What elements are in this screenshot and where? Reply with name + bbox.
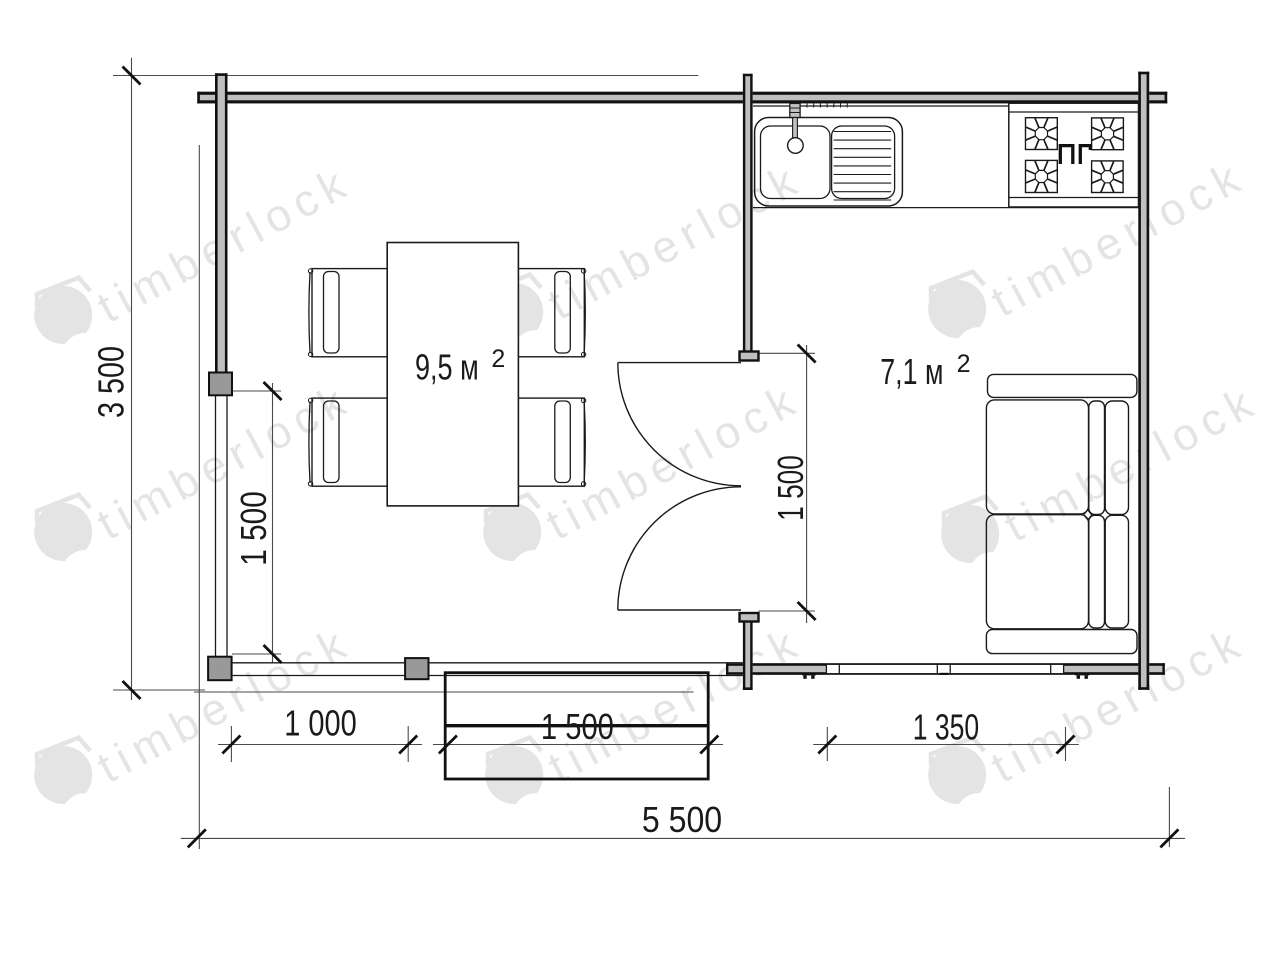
svg-text:9,5 м: 9,5 м [415,346,479,387]
svg-text:5 500: 5 500 [642,799,722,840]
svg-text:2: 2 [957,350,971,378]
svg-text:1 500: 1 500 [233,491,274,566]
svg-text:1 500: 1 500 [541,706,614,747]
svg-text:1 500: 1 500 [770,455,811,521]
svg-text:7,1 м: 7,1 м [880,351,943,392]
svg-text:3 500: 3 500 [91,346,132,418]
svg-text:1 350: 1 350 [913,707,979,748]
svg-text:1 000: 1 000 [284,703,357,744]
svg-text:2: 2 [491,345,505,373]
